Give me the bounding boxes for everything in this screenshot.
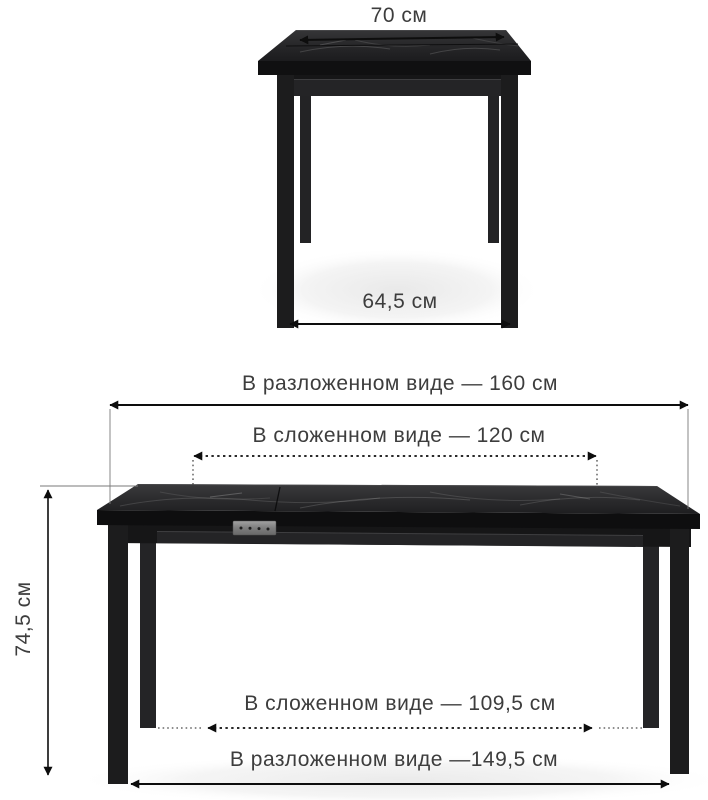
end-view-back-right-leg xyxy=(488,92,499,243)
end-view-top-edge xyxy=(258,61,531,75)
end-view-apron-recess xyxy=(289,79,506,96)
end-view-front-left-leg xyxy=(277,74,294,328)
table-dimensions-illustration xyxy=(0,0,708,800)
end-view-back-left-leg xyxy=(300,92,311,243)
product-dimensions-diagram: 70 см 64,5 см В разложенном виде — 160 с… xyxy=(0,0,708,800)
front-view-front-left-leg xyxy=(108,520,128,784)
folded-width-label: В сложенном виде — 120 см xyxy=(253,424,546,448)
latch-plate xyxy=(233,521,276,535)
unfolded-width-label: В разложенном виде — 160 см xyxy=(242,372,558,396)
unfolded-leg-span-label: В разложенном виде —149,5 см xyxy=(230,748,558,772)
front-view-back-right-leg xyxy=(643,535,659,728)
top-width-label: 70 см xyxy=(371,4,428,28)
end-view-table xyxy=(252,30,542,332)
front-view-front-right-leg xyxy=(670,520,689,774)
front-view-marble-top xyxy=(97,484,700,514)
folded-leg-span-label: В сложенном виде — 109,5 см xyxy=(244,692,555,716)
end-leg-span-label: 64,5 см xyxy=(362,290,437,314)
height-label: 74,5 см xyxy=(12,581,36,656)
end-view-front-right-leg xyxy=(501,74,518,328)
front-view-back-left-leg xyxy=(140,535,156,728)
dimension-lines xyxy=(40,37,688,784)
